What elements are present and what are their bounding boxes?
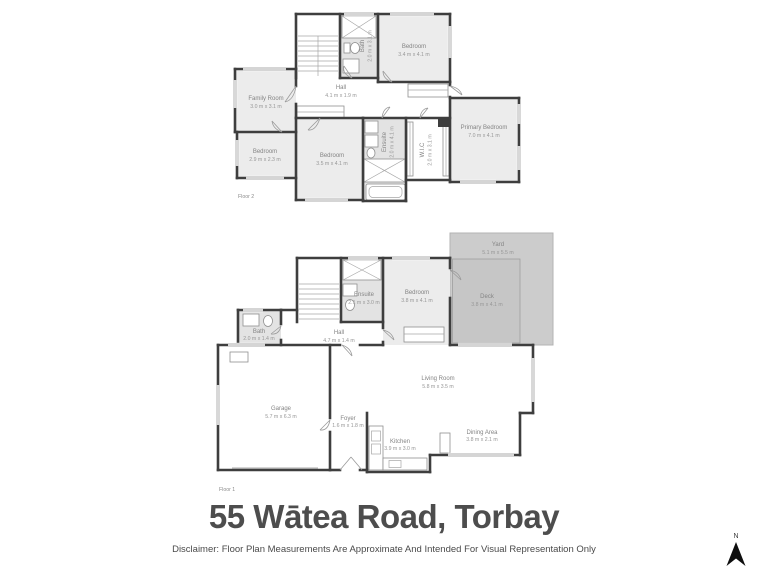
room-label: Family Room — [248, 96, 283, 102]
garage-utility — [230, 352, 248, 362]
room-dims: 2.0 m x 3.1 m — [428, 134, 434, 165]
room-primary-f2 — [450, 98, 519, 182]
room-label: Bath — [253, 329, 265, 335]
room-label: Living Room — [421, 376, 454, 382]
room-bedroom-mid-f2 — [296, 118, 363, 200]
room-label: Bedroom — [405, 290, 429, 296]
room-dims: 7.0 m x 4.1 m — [468, 133, 499, 139]
wardrobe-icon — [408, 84, 448, 97]
room-dims: 4.7 m x 1.4 m — [323, 338, 354, 344]
floor-2-plan: Family Room 3.0 m x 3.1 m Hall 4.1 m x 1… — [233, 12, 521, 202]
room-label: Deck — [480, 294, 495, 300]
room-dims: 3.5 m x 4.1 m — [316, 161, 347, 167]
room-dims: 2.9 m x 2.3 m — [249, 157, 280, 163]
room-bedroom-small-f2 — [237, 132, 296, 178]
room-label: Bedroom — [253, 149, 277, 155]
pantry-block — [440, 433, 450, 453]
disclaimer-text: Disclaimer: Floor Plan Measurements Are … — [0, 544, 768, 555]
room-label: Ensuite — [382, 131, 388, 152]
deck-area — [453, 259, 521, 343]
floor-plan-canvas: Family Room 3.0 m x 3.1 m Hall 4.1 m x 1… — [0, 0, 768, 576]
room-label: Hall — [334, 330, 344, 336]
room-label: Garage — [271, 406, 292, 412]
toilet-icon — [344, 43, 360, 54]
room-label: Ensuite — [354, 292, 375, 298]
room-label: Primary Bedroom — [461, 125, 508, 131]
room-label: Bedroom — [402, 44, 426, 50]
room-label: Bath — [360, 40, 366, 52]
bathtub-icon — [366, 184, 405, 200]
room-dims: 3.4 m x 4.1 m — [398, 52, 429, 58]
room-dims: 3.8 m x 2.1 m — [466, 437, 497, 443]
room-dims: 2.0 m x 4.1 m — [390, 126, 396, 157]
room-dims: 5.7 m x 6.3 m — [265, 414, 296, 420]
room-label: Foyer — [340, 416, 355, 422]
bath-fixtures — [243, 314, 273, 327]
shower-icon — [364, 159, 405, 182]
page-title: 55 Wātea Road, Torbay — [0, 498, 768, 536]
room-label: W.I.C — [420, 142, 426, 157]
room-dims: 2.0 m x 3.1 m — [368, 30, 374, 61]
floor-1-label: Floor 1 — [219, 487, 235, 493]
room-label: Dining Area — [466, 430, 498, 436]
room-dims: 3.8 m x 4.1 m — [471, 302, 502, 308]
room-label: Bedroom — [320, 153, 344, 159]
shower-icon — [343, 260, 381, 280]
stairwell-f1 — [297, 258, 341, 322]
room-label: Kitchen — [390, 439, 410, 445]
wardrobe-icon — [297, 106, 344, 118]
sink-icon — [343, 59, 359, 73]
room-dims: 3.8 m x 4.1 m — [401, 298, 432, 304]
room-dims: 5.8 m x 3.5 m — [422, 384, 453, 390]
floor-2-label: Floor 2 — [238, 194, 254, 200]
room-dims: 4.1 m x 1.9 m — [325, 93, 356, 99]
room-label: Yard — [492, 242, 504, 248]
room-dims: 2.0 m x 1.4 m — [243, 336, 274, 342]
room-dims: 5.1 m x 5.5 m — [482, 250, 513, 256]
room-dims: 3.9 m x 3.0 m — [384, 446, 415, 452]
wardrobe-icon — [404, 327, 444, 342]
room-dims: 3.0 m x 3.1 m — [250, 104, 281, 110]
room-dims: 2.1 m x 3.0 m — [348, 300, 379, 306]
room-dims: 1.6 m x 1.8 m — [332, 423, 363, 429]
room-label: Hall — [336, 85, 346, 91]
floor-1-plan: Yard 5.1 m x 5.5 m Deck 3.8 m x 4.1 m En… — [216, 233, 553, 493]
